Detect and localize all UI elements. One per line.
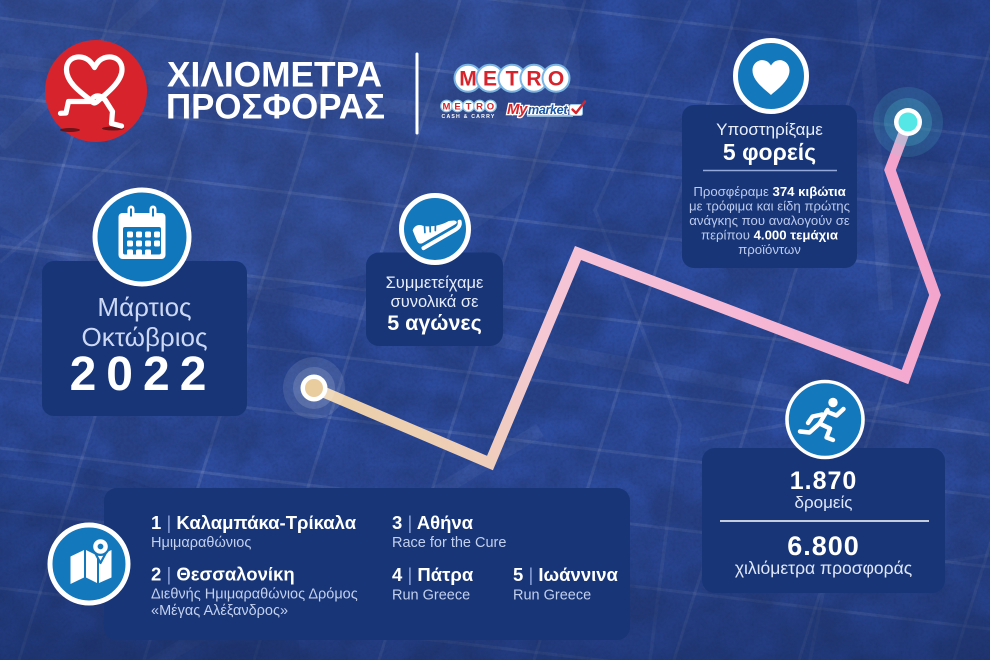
svg-text:6.800: 6.800: [787, 531, 860, 561]
svg-text:Συμμετείχαμε: Συμμετείχαμε: [386, 274, 484, 292]
svg-text:Run Greece: Run Greece: [392, 588, 470, 604]
svg-text:Run Greece: Run Greece: [513, 588, 591, 604]
svg-text:5 φορείς: 5 φορείς: [723, 139, 816, 165]
svg-text:M: M: [443, 102, 451, 113]
svg-text:ανάγκης που αναλογούν σε: ανάγκης που αναλογούν σε: [689, 213, 850, 228]
svg-text:R: R: [476, 102, 483, 113]
svg-text:M: M: [459, 68, 477, 91]
svg-text:Υποστηρίξαμε: Υποστηρίξαμε: [716, 120, 823, 139]
svg-text:δρομείς: δρομείς: [795, 493, 853, 512]
svg-text:3 | Αθήνα: 3 | Αθήνα: [392, 512, 474, 533]
svg-text:χιλιόμετρα προσφοράς: χιλιόμετρα προσφοράς: [735, 558, 912, 578]
svg-text:με τρόφιμα και είδη πρώτης: με τρόφιμα και είδη πρώτης: [689, 199, 850, 214]
svg-text:O: O: [487, 102, 494, 113]
svg-text:συνολικά σε: συνολικά σε: [391, 293, 480, 311]
svg-text:1.870: 1.870: [790, 467, 858, 495]
svg-text:2 | Θεσσαλονίκη: 2 | Θεσσαλονίκη: [151, 564, 295, 585]
svg-text:προϊόντων: προϊόντων: [738, 242, 801, 257]
svg-text:Race for the Cure: Race for the Cure: [392, 535, 506, 551]
svg-text:T: T: [506, 68, 519, 91]
svg-text:Προσφέραμε 374 κιβώτια: Προσφέραμε 374 κιβώτια: [693, 184, 845, 199]
svg-text:2022: 2022: [70, 348, 217, 401]
svg-text:Ημιμαραθώνιος: Ημιμαραθώνιος: [151, 535, 251, 551]
svg-text:1 | Καλαμπάκα-Τρίκαλα: 1 | Καλαμπάκα-Τρίκαλα: [151, 512, 357, 533]
svg-text:«Μέγας Αλέξανδρος»: «Μέγας Αλέξανδρος»: [151, 603, 288, 619]
svg-text:CASH & CARRY: CASH & CARRY: [442, 114, 496, 120]
svg-text:ΠΡΟΣΦΟΡΑΣ: ΠΡΟΣΦΟΡΑΣ: [166, 88, 385, 127]
svg-text:5 | Ιωάννινα: 5 | Ιωάννινα: [513, 564, 619, 585]
svg-text:T: T: [466, 102, 472, 113]
svg-text:R: R: [526, 68, 541, 91]
svg-text:My: My: [507, 101, 528, 118]
svg-text:E: E: [454, 102, 460, 113]
svg-text:E: E: [483, 68, 497, 91]
svg-text:Διεθνής Ημιμαραθώνιος Δρόμος: Διεθνής Ημιμαραθώνιος Δρόμος: [151, 587, 358, 603]
svg-text:Μάρτιος: Μάρτιος: [97, 292, 191, 322]
svg-text:περίπου 4.000 τεμάχια: περίπου 4.000 τεμάχια: [701, 228, 838, 243]
svg-text:4 | Πάτρα: 4 | Πάτρα: [392, 564, 474, 585]
svg-text:O: O: [548, 68, 564, 91]
svg-text:5 αγώνες: 5 αγώνες: [387, 311, 482, 335]
